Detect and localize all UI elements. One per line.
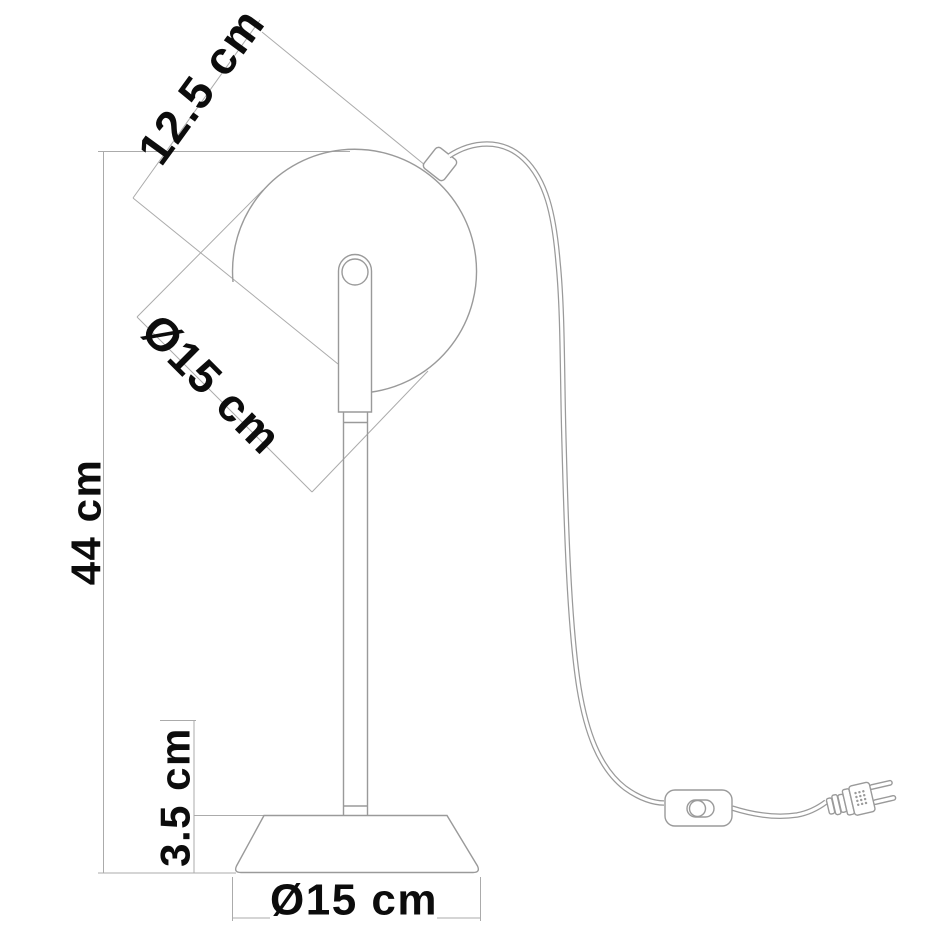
power-cord: [449, 144, 826, 816]
plug-prong-lower: [873, 795, 896, 805]
plug-prong-upper: [869, 780, 892, 790]
stem: [339, 255, 372, 816]
lamp: [233, 146, 479, 873]
diagram-svg: 44 cm 3.5 cm Ø15 cm 12.5 cm Ø15 cm: [0, 0, 945, 945]
cord-segment-1-inner: [449, 144, 664, 803]
lamp-base: [236, 816, 479, 873]
dimension-base-diameter: Ø15 cm: [233, 876, 481, 925]
label-base-height: 3.5 cm: [152, 727, 199, 867]
label-total-height: 44 cm: [63, 459, 110, 586]
label-head-diameter: Ø15 cm: [132, 304, 293, 465]
power-plug: [824, 777, 897, 822]
label-base-diameter: Ø15 cm: [270, 876, 438, 925]
lamp-dimension-diagram: 44 cm 3.5 cm Ø15 cm 12.5 cm Ø15 cm: [0, 0, 945, 945]
switch-body: [665, 790, 732, 826]
dim-extension-upper: [137, 190, 263, 317]
dimension-head-diameter: Ø15 cm: [132, 190, 428, 492]
inline-switch: [665, 790, 732, 826]
label-head-depth: 12.5 cm: [127, 0, 274, 174]
dimension-total-height: 44 cm: [63, 152, 351, 874]
